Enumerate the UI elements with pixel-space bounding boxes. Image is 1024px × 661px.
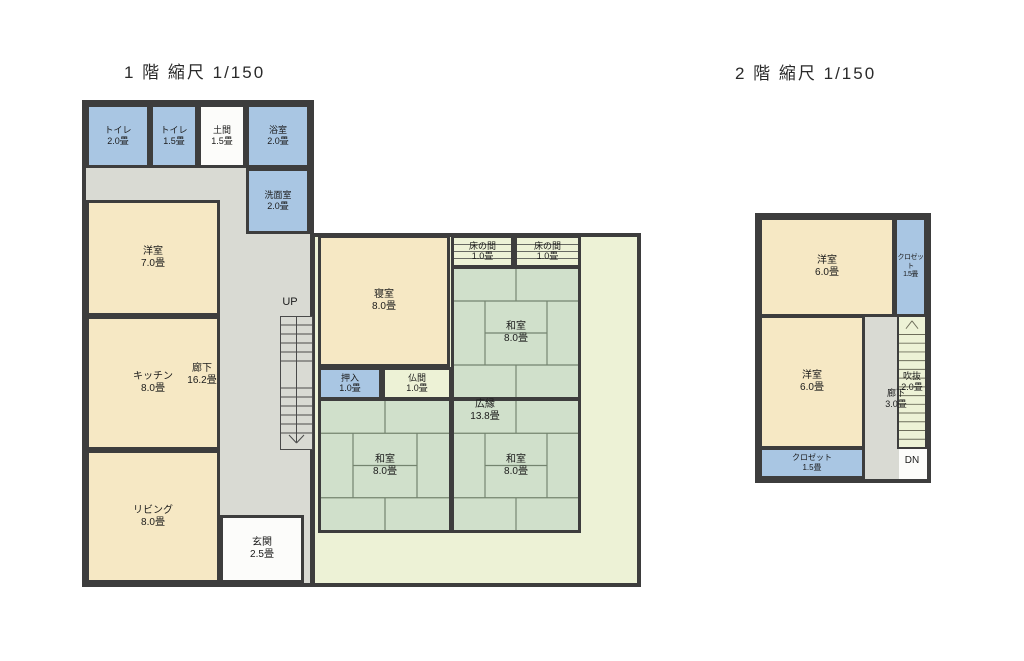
room-western-7: 洋室 7.0畳 <box>86 200 220 316</box>
room-name: 洗面室 <box>264 190 291 201</box>
room-name: トイレ <box>104 125 131 136</box>
room-size: 16.2畳 <box>187 375 216 386</box>
stairs-up-label: UP <box>270 296 310 309</box>
room-size: 7.0畳 <box>141 258 165 270</box>
room-bedroom: 寝室 8.0畳 <box>318 235 450 367</box>
room-size: 8.0畳 <box>504 466 528 478</box>
room-name: 和室 <box>375 454 395 466</box>
room-size: 1.5畳 <box>802 463 821 473</box>
room-name: クロゼット <box>792 453 832 463</box>
room-tokonoma-2: 床の間 1.0畳 <box>514 235 581 268</box>
staircase-icon <box>280 316 313 450</box>
room-size: 1.0畳 <box>406 384 428 394</box>
floor1-title: 1 階 縮尺 1/150 <box>124 58 265 83</box>
room-size: 2.0畳 <box>267 136 289 147</box>
room-name: 土間 <box>213 125 231 136</box>
room-name: 洋室 <box>817 255 837 267</box>
room-name: リビング <box>133 505 173 517</box>
room-size: 1.5畳 <box>163 136 185 147</box>
room-toilet-1: トイレ 2.0畳 <box>86 104 150 168</box>
room-size: 2.0畳 <box>107 136 129 147</box>
floor2-title: 2 階 縮尺 1/150 <box>735 59 876 84</box>
corridor-label: 廊下 16.2畳 <box>166 363 238 387</box>
room-size: 3.0畳 <box>885 399 907 409</box>
room-size: 6.0畳 <box>800 382 824 394</box>
room-tatami-bottom-left: 和室 8.0畳 <box>318 398 452 533</box>
room-name: 浴室 <box>269 125 287 136</box>
room-doma: 土間 1.5畳 <box>198 104 246 168</box>
veranda-label: 広縁 13.8畳 <box>454 399 516 423</box>
room-name: 洋室 <box>802 370 822 382</box>
room-name: 吹抜 <box>903 371 921 381</box>
room-size: 8.0畳 <box>372 301 396 313</box>
room-size: 1.0畳 <box>339 384 361 394</box>
corridor-label: 廊下 3.0畳 <box>874 388 918 410</box>
room-name: 広縁 <box>475 399 495 410</box>
room-closet-top: クロゼット 1.5畳 <box>894 217 927 317</box>
room-closet-oshiire: 押入 1.0畳 <box>318 367 382 400</box>
room-washroom: 洗面室 2.0畳 <box>246 168 310 234</box>
room-size: 8.0畳 <box>373 466 397 478</box>
room-living: リビング 8.0畳 <box>86 450 220 583</box>
room-size: 8.0畳 <box>504 333 528 345</box>
room-closet-bottom: クロゼット 1.5畳 <box>759 447 865 479</box>
stairs-down-label: DN <box>897 455 927 467</box>
room-bath: 浴室 2.0畳 <box>246 104 310 168</box>
room-tatami-top-right: 和室 8.0畳 <box>451 266 581 400</box>
floor-plan-page: 1 階 縮尺 1/150 2 階 縮尺 1/150 トイレ 2.0畳 トイレ 1… <box>0 0 1024 661</box>
room-size: 8.0畳 <box>141 383 165 395</box>
room-size: 2.5畳 <box>250 549 274 561</box>
room-western-6-bottom: 洋室 6.0畳 <box>759 315 865 449</box>
room-name: クロゼット <box>897 254 924 271</box>
room-size: 13.8畳 <box>470 411 499 422</box>
room-size: 6.0畳 <box>815 267 839 279</box>
room-name: 寝室 <box>374 289 394 301</box>
room-size: 1.5畳 <box>211 136 233 147</box>
room-western-6-top: 洋室 6.0畳 <box>759 217 895 317</box>
room-butsuma: 仏間 1.0畳 <box>382 367 452 400</box>
room-name: 和室 <box>506 454 526 466</box>
room-name: 和室 <box>506 321 526 333</box>
room-size: 1.0畳 <box>537 252 559 262</box>
room-name: 玄関 <box>252 537 272 549</box>
room-name: 廊下 <box>887 388 905 398</box>
floor1-plan: トイレ 2.0畳 トイレ 1.5畳 土間 1.5畳 浴室 2.0畳 洗面室 2.… <box>82 100 641 587</box>
room-entrance: 玄関 2.5畳 <box>220 515 304 583</box>
room-size: 2.0畳 <box>267 201 289 212</box>
room-toilet-2: トイレ 1.5畳 <box>150 104 198 168</box>
room-size: 1.0畳 <box>472 252 494 262</box>
room-size: 8.0畳 <box>141 517 165 529</box>
room-tokonoma-1: 床の間 1.0畳 <box>451 235 514 268</box>
room-name: トイレ <box>160 125 187 136</box>
room-name: 洋室 <box>143 246 163 258</box>
room-name: 廊下 <box>192 363 212 374</box>
floor2-plan: 洋室 6.0畳 クロゼット 1.5畳 洋室 6.0畳 クロゼット <box>755 213 931 483</box>
room-size: 1.5畳 <box>903 271 918 279</box>
